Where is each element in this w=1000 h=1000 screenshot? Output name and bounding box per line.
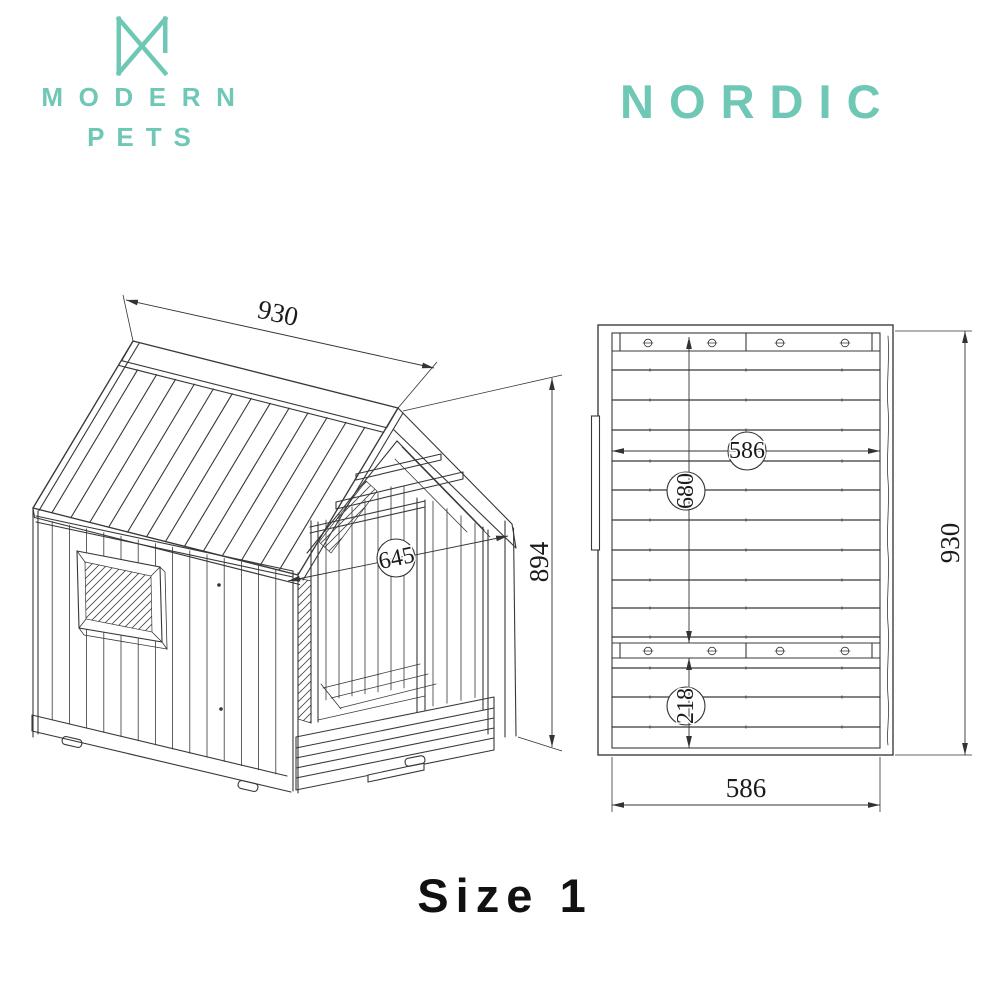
top-dim-bottom-width: 586 xyxy=(726,773,767,803)
iso-view: 930 894 645 xyxy=(32,294,562,793)
technical-drawing: 930 894 645 xyxy=(0,0,1000,1000)
window xyxy=(77,551,167,649)
iso-dim-roof-length: 930 xyxy=(255,294,301,332)
top-view: 586 680 218 930 586 xyxy=(592,325,973,812)
top-view-dimensions: 586 680 218 930 586 xyxy=(612,331,972,812)
top-dim-lower-length: 218 xyxy=(673,688,699,724)
top-dim-inner-width: 586 xyxy=(729,438,765,464)
top-dim-upper-length: 680 xyxy=(673,473,699,509)
top-dim-outer-length: 930 xyxy=(935,523,965,564)
iso-dim-height: 894 xyxy=(524,541,554,582)
size-label: Size 1 xyxy=(0,868,1000,923)
